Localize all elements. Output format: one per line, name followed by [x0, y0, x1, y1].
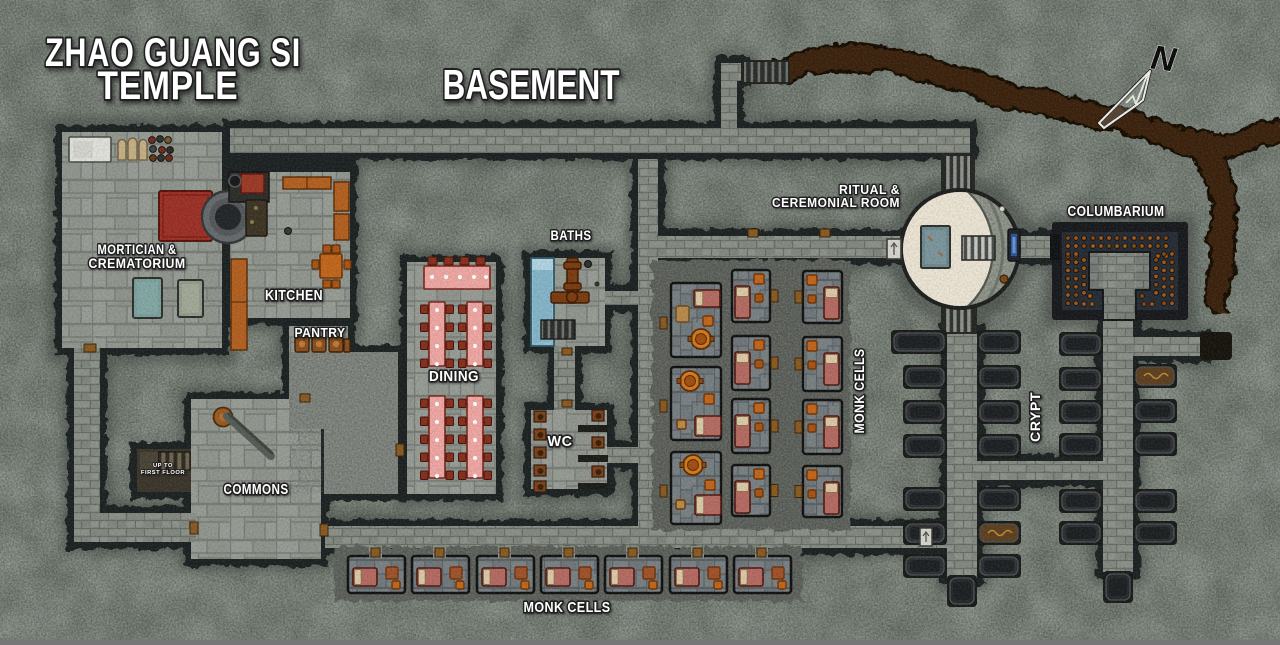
- svg-text:TEMPLE: TEMPLE: [98, 64, 239, 108]
- svg-text:COLUMBARIUM: COLUMBARIUM: [1068, 204, 1165, 220]
- svg-text:COMMONS: COMMONS: [224, 481, 289, 498]
- svg-text:FIRST FLOOR: FIRST FLOOR: [141, 470, 185, 476]
- svg-text:CEREMONIAL ROOM: CEREMONIAL ROOM: [772, 196, 900, 210]
- svg-text:WC: WC: [548, 433, 573, 450]
- svg-text:MONK CELLS: MONK CELLS: [524, 599, 611, 616]
- svg-text:CREMATORIUM: CREMATORIUM: [89, 255, 186, 271]
- svg-text:CRYPT: CRYPT: [1027, 392, 1043, 442]
- svg-text:BASEMENT: BASEMENT: [443, 61, 620, 108]
- svg-text:UP TO: UP TO: [153, 463, 173, 469]
- svg-text:PANTRY: PANTRY: [295, 325, 346, 340]
- svg-text:DINING: DINING: [429, 368, 479, 385]
- svg-text:MONK CELLS: MONK CELLS: [851, 349, 867, 434]
- svg-text:KITCHEN: KITCHEN: [265, 287, 323, 304]
- svg-text:RITUAL &: RITUAL &: [839, 183, 900, 197]
- svg-text:BATHS: BATHS: [551, 227, 592, 243]
